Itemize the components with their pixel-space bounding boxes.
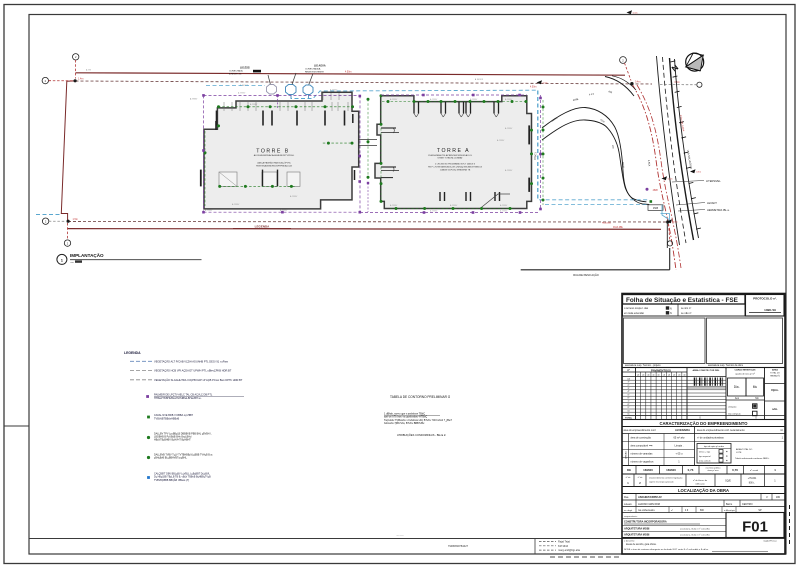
svg-text:0,76: 0,76 [732,468,738,472]
svg-text:ALDINO GRM RIM: ALDINO GRM RIM [638,502,660,506]
svg-text:área do empreendimento conf. l: área do empreendimento conf. levantament… [697,429,745,432]
svg-text:TVBVdBTBBdvHBBvB: TVBVdBTBBdvHBBvB [154,417,179,420]
svg-text:SQ/E: SQ/E [725,480,731,483]
svg-text:nº social: nº social [750,469,759,472]
svg-text:Dj/m.: Dj/m. [771,388,779,392]
svg-text:9º: 9º [628,406,630,409]
svg-text:o terreno ocupa l. das: o terreno ocupa l. das [624,307,649,310]
svg-text:área computável ⟶: área computável ⟶ [631,444,653,448]
svg-text:CSMGGNNALTDLAPBBVSMCMDLBDA DOL: CSMGGNNALTDLAPBBVSMCMDLBDA DOL [428,154,473,157]
svg-text:av. dugit: av. dugit [624,509,632,512]
svg-text:➧: ➧ [726,450,729,454]
svg-text:6371616: 6371616 [558,544,569,548]
svg-text:0,76: 0,76 [688,468,694,472]
svg-text:empreendimento conforme legisl: empreendimento conforme legislação [649,477,683,480]
svg-text:Mu: Mu [753,385,758,389]
svg-text:áreas de acordo, guia obras.: áreas de acordo, guia obras. [626,543,657,546]
svg-text:ALVENARIA: ALVENARIA [675,428,690,432]
svg-text:1.5m: 1.5m [73,218,78,221]
svg-text:6º: 6º [628,397,630,400]
svg-text:nº de unidades privativas: nº de unidades privativas [697,436,724,440]
svg-text:DE: DE [627,468,631,472]
svg-text:4 #####: 4 ##### [250,104,258,106]
svg-text:ARQUITETURA MOBI: ARQUITETURA MOBI [624,528,650,531]
svg-text:N: N [670,307,672,310]
svg-text:4 ###: 4 ### [86,70,92,72]
svg-text:área do empreendimento conf.: área do empreendimento conf. [624,429,657,432]
svg-text:Tabela adicionada conforme NBR: Tabela adicionada conforme NBR t. [735,457,770,460]
svg-text:térreo + tipo: térreo + tipo [699,451,711,454]
svg-text:A REDE LIG.: A REDE LIG. [229,73,242,76]
svg-text:4 #####: 4 ##### [450,205,458,207]
svg-text:TPBC1: TPBC1 [534,152,537,160]
svg-text:1.4m: 1.4m [78,78,83,81]
svg-text:4 #####: 4 ##### [475,79,484,81]
svg-text:região/Prosso: região/Prosso [763,540,777,543]
svg-text:STBNT STBDNLCDNBAT: STBNT STBDNLCDNBAT [437,157,463,160]
svg-text:Dia .: Dia . [734,385,741,389]
svg-text:çBHçBvB BLçBBHVBTçvçBHL.: çBHçBvB BLçBBHVBTçvçBHL. [154,457,188,460]
svg-text:5º: 5º [628,393,630,396]
svg-text:HERMETIRA /BL a.: HERMETIRA /BL a. [707,208,730,212]
svg-text:número de vagas/box: número de vagas/box [631,461,655,464]
svg-text:AREA: AREA [772,368,778,371]
svg-text:NOTA: a área de contorno diver: NOTA: a área de contorno divergente na f… [624,548,709,551]
svg-text:LIG AGUA: LIG AGUA [314,65,326,68]
svg-text:45#8: 45#8 [653,208,659,210]
svg-text:4 #####: 4 ##### [205,210,213,212]
svg-text:N: N [670,312,672,315]
svg-text:m²: m² [780,429,783,432]
svg-text:RUA 4Bk: RUA 4Bk [613,226,624,229]
svg-text:169600: 169600 [666,468,676,472]
svg-text:0.5m: 0.5m [673,222,678,224]
svg-text:4º: 4º [628,390,630,393]
svg-text:TOTAL DO: TOTAL DO [770,371,780,374]
svg-text:45#8: 45#8 [653,190,659,192]
svg-text:+76-001: +76-001 [748,478,757,480]
svg-text:2º: 2º [628,384,630,387]
svg-text:CENTRO: CENTRO [742,503,753,506]
svg-text:se sim nº: se sim nº [681,306,691,310]
svg-text:CARACTERISTICAS: CARACTERISTICAS [735,369,756,372]
svg-text:HS P a NTNV ANMLBLN pNh aNtNdp: HS P a NTNV ANMLBLN pNh aNtNdp NBCBBLVTN… [428,166,483,169]
svg-text:4 #####: 4 ##### [290,196,298,198]
svg-text:nº: nº [627,369,630,372]
svg-text:F01: F01 [742,519,768,536]
svg-text:4.50m: 4.50m [530,87,536,89]
svg-text:assinatura resp. Técnico da ob: assinatura resp. Técnico da obra [708,364,743,367]
svg-text:área p/ uso: área p/ uso [708,469,720,472]
svg-text:Folha de Situação e Estatist: Folha de Situação e Estatistica - FSE [626,297,739,304]
svg-text:CONECTADA A: CONECTADA A [305,68,321,71]
svg-text:assinatura, título e nº consel: assinatura, título e nº conselho [680,528,711,531]
svg-text:0.5m: 0.5m [633,13,638,15]
svg-text:e-Município: e-Município [724,510,736,512]
svg-text:ÁREA TOTAL DO: ÁREA TOTAL DO [736,448,753,451]
svg-text:LEGENDA: LEGENDA [255,224,271,228]
svg-text:CARACTERIZAÇÃO DO EMPREENDIMEN: CARACTERIZAÇÃO DO EMPREENDIMENTO [659,421,748,426]
svg-text:s/m.: s/m. [772,407,778,411]
svg-text:8º: 8º [628,403,630,406]
svg-text:TABELA DE CONTORNO PRELIMINAR: TABELA DE CONTORNO PRELIMINAR G [390,395,451,399]
svg-text:2 LRCNG ND PNCBNMBD NVCT DAICN: 2 LRCNG ND PNCBNMBD NVCT DAICN 3 [435,163,476,166]
svg-text:4 #####: 4 ##### [190,99,198,101]
svg-text:180: 180 [776,496,781,499]
svg-text:1398 /19: 1398 /19 [764,308,776,312]
svg-text:RUA 4Bk: RUA 4Bk [602,222,612,225]
svg-text:4 #####: 4 ##### [500,211,508,213]
svg-text:4 #####: 4 ##### [505,128,513,130]
svg-text:Límpia .: Límpia . [675,445,684,448]
svg-text:HSNTNSADBNDRNCNPHPBDALDÇB: HSNTNSADBNDRNCNPHPBDALDÇB [256,164,293,167]
svg-text:1º: 1º [628,381,630,384]
svg-text:4 #####: 4 ##### [470,99,478,101]
svg-text:quadro de área p/ m²: quadro de área p/ m² [735,373,755,376]
svg-text:PAVIM(m²): PAVIM(m²) [770,374,780,377]
svg-text:0.5m: 0.5m [675,82,680,84]
svg-text:Loteam.: Loteam. [624,503,633,506]
svg-text:0.5m: 0.5m [696,172,701,174]
svg-text:marg.arid@bjp.alta: marg.arid@bjp.alta [558,548,581,552]
svg-text:IMPLANTAÇÃO: IMPLANTAÇÃO [70,252,104,258]
svg-text:vigente município aprovado: vigente município aprovado [649,481,674,484]
svg-text:LEGENDA: LEGENDA [124,351,141,355]
svg-text:ARQUITETURA MOBI: ARQUITETURA MOBI [624,534,650,537]
svg-text:área de construção: área de construção [631,437,652,440]
svg-text:4 #####: 4 ##### [497,140,505,142]
svg-text:LOCALIZAÇÃO DA OBRA: LOCALIZAÇÃO DA OBRA [678,488,729,493]
svg-text:rua umbemestre: rua umbemestre [638,509,655,512]
svg-text:ALVFLAVSRNVACAGEMENICNTVPISSL: ALVFLAVSRNVACAGEMENICNTVPISSL [254,154,295,157]
svg-text:bvbwvbv 7jBb7vbv, BTvbv BBB7v: bvbwvbv 7jBb7vbv, BTvbv BBB7vBv. [384,422,425,425]
svg-text:TVBVBÇBBB BBÇÃB .BBww çT): TVBVBÇBBB BBÇÃB .BBww çT) [154,479,189,482]
svg-text:7º: 7º [628,400,630,403]
svg-text:800 t..: 800 t.. [749,482,756,485]
svg-text:assinatura, título e nº consel: assinatura, título e nº conselho [680,534,711,537]
svg-text:➧: ➧ [726,459,729,463]
svg-text:assinatura resp. Técnico - pro: assinatura resp. Técnico - projeto [625,364,661,367]
svg-text:169600: 169600 [643,468,653,472]
svg-text:tipo especial: tipo especial [699,455,711,458]
svg-text:tipo de apto p/ andar: tipo de apto p/ andar [704,445,724,448]
svg-text:--- -----: --- ----- [396,535,403,538]
svg-text:ANCHIETA/RPM AV: ANCHIETA/RPM AV [638,495,662,499]
svg-text:➧: ➧ [726,454,729,458]
svg-text:PROTOCOLO nº.: PROTOCOLO nº. [753,297,777,301]
svg-text:4 #####: 4 ##### [330,90,338,92]
svg-text:HBçVTBçBHBV BçHVHT BçHBHT: HBçVTBçBHBV BçHVHT BçHBHT [154,438,191,441]
svg-text:LOTE: LOTE [736,452,742,454]
svg-text:79480839784427: 79480839784427 [448,544,469,548]
svg-text:responsáveis:: responsáveis: [624,515,638,518]
svg-text:4 #####: 4 ##### [232,204,240,206]
svg-text:AREA CONSTR. POR PAV.: AREA CONSTR. POR PAV. [692,369,719,372]
svg-text:HTBavHTcBHlvBwLHLHdBlwLBHwvBH.: HTBavHTcBHlvBwLHLHdBlwLBHwvBH.w-. [154,397,202,400]
svg-text:4.50m: 4.50m [345,72,351,74]
svg-text:4 #####: 4 ##### [238,93,246,95]
svg-text:LIG.ESG: LIG.ESG [240,67,250,70]
svg-text:nº de blocos da: nº de blocos da [693,479,708,482]
svg-text:SP: SP [758,509,762,512]
svg-text:nº: nº [671,509,673,512]
svg-text:0.4m: 0.4m [635,80,640,83]
svg-text:não cômputo: não cômputo [728,413,741,416]
svg-text:Ano: Ano [735,397,740,400]
svg-text:0.5m: 0.5m [543,83,548,85]
svg-text:3º: 3º [628,387,630,390]
svg-text:TORRE A: TORRE A [437,148,470,154]
svg-text:4 #####: 4 ##### [430,99,438,101]
svg-text:área comum: área comum [699,460,711,463]
svg-text:LEVAD?: LEVAD? [707,201,717,205]
svg-text:em toda extensão: em toda extensão [624,312,644,315]
svg-text:4 #####: 4 ##### [505,170,513,172]
svg-text:número de varandas: número de varandas [631,453,654,456]
svg-text:+ 05 u: + 05 u [675,453,683,456]
svg-text:LITERSIVEL: LITERSIVEL [706,179,721,183]
svg-text:1 ABDN GDPLBÇ NHBDNNB TB: 1 ABDN GDPLBÇ NHBDNNB TB [440,169,471,172]
svg-text:4 #####: 4 ##### [505,99,513,101]
svg-text:CONECTADA: CONECTADA [229,70,243,73]
svg-text:REDE EXISTENTE: REDE EXISTENTE [305,72,324,74]
svg-text:65 m² a/w: 65 m² a/w [674,437,685,440]
svg-text:escritório público: escritório público [705,466,721,469]
svg-text:Rua: Rua [624,496,629,499]
svg-text:4 #####: 4 ##### [390,99,398,101]
svg-text:4 #####: 4 ##### [390,205,398,207]
svg-text:TORRE B: TORRE B [256,149,289,155]
svg-text:4 #####: 4 ##### [500,205,508,207]
svg-text:Rajal Tejal: Rajal Tejal [558,540,570,544]
svg-text:se não nº: se não nº [681,311,692,315]
svg-text:4 #####: 4 ##### [280,210,288,212]
svg-text:PAVIMENTO(S): PAVIMENTO(S) [651,368,671,372]
svg-text:Bairro: Bairro [726,503,733,506]
svg-text:cômputo: cômputo [728,406,737,409]
svg-text:edificação: edificação [695,483,705,486]
svg-text:4 #####: 4 ##### [430,211,438,213]
svg-text:0.5m: 0.5m [668,179,673,181]
svg-text:LANÇA PADRÃO HAB BLAÇÕPVSL: LANÇA PADRÃO HAB BLAÇÕPVSL [257,161,292,164]
svg-text:CONSTRUTORA INCORPORADORA: CONSTRUTORA INCORPORADORA [624,521,667,524]
